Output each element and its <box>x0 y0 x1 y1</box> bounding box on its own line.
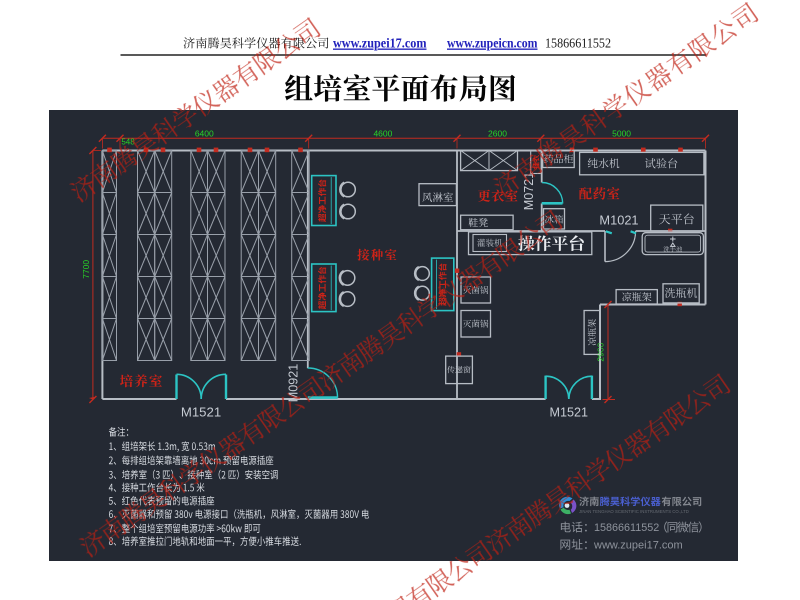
svg-text:5000: 5000 <box>612 129 631 139</box>
svg-text:M1521: M1521 <box>181 404 221 419</box>
svg-text:M1521: M1521 <box>550 405 589 419</box>
svg-text:15866611552: 15866611552 <box>594 522 659 534</box>
svg-text:7700: 7700 <box>81 260 91 279</box>
svg-text:M1021: M1021 <box>599 212 638 227</box>
svg-text:M0721: M0721 <box>522 172 536 211</box>
svg-text:4600: 4600 <box>373 129 392 139</box>
svg-text:2600: 2600 <box>488 129 507 139</box>
svg-text:6400: 6400 <box>195 129 214 139</box>
svg-text:15866611552: 15866611552 <box>545 36 611 51</box>
svg-text:www.zupeicn.com: www.zupeicn.com <box>447 36 538 51</box>
svg-text:www.zupei17.com: www.zupei17.com <box>333 36 427 51</box>
svg-text:www.zupei17.com: www.zupei17.com <box>593 539 683 551</box>
svg-text:JINAN TENGHAO SCIENTIFIC INSTR: JINAN TENGHAO SCIENTIFIC INSTRUMENTS CO.… <box>579 509 689 514</box>
